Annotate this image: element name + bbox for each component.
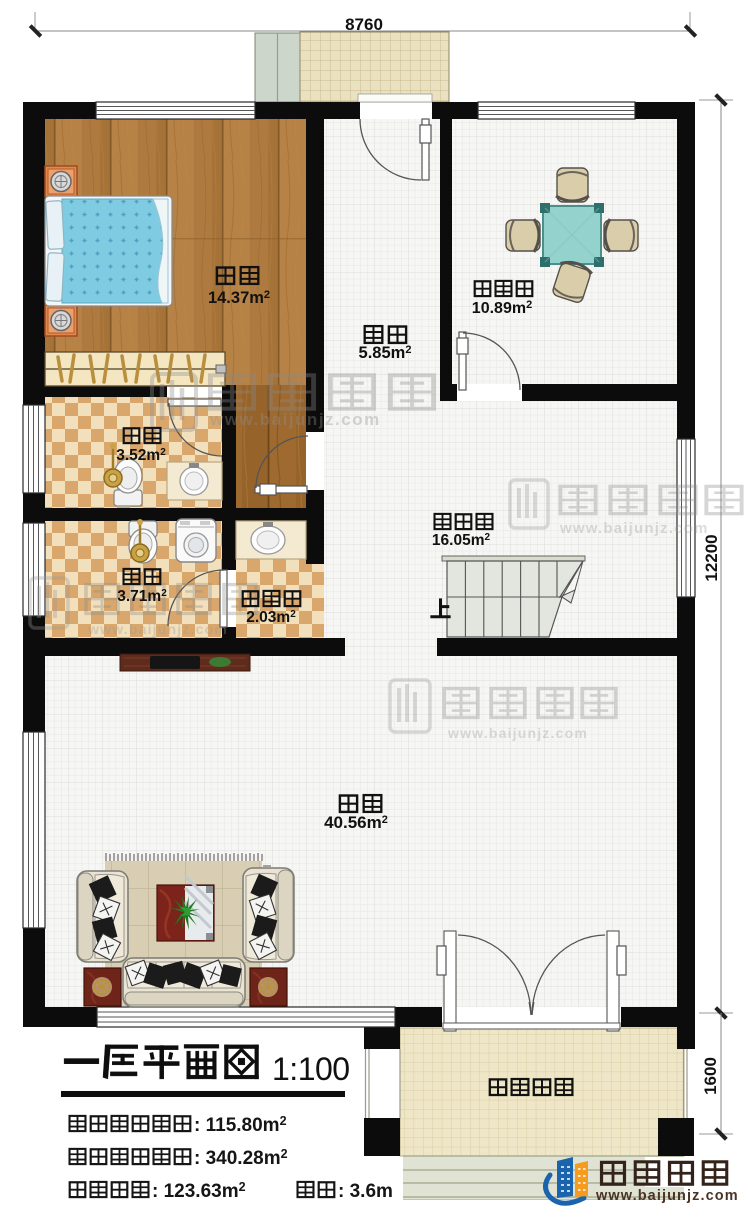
svg-text:www.baijunjz.com: www.baijunjz.com [209, 410, 381, 429]
svg-text:: 340.28m2: : 340.28m2 [194, 1147, 288, 1169]
svg-text:10.89m2: 10.89m2 [472, 299, 532, 317]
svg-text:8760: 8760 [345, 15, 383, 34]
svg-text:www.baijunjz.com: www.baijunjz.com [87, 621, 228, 637]
svg-text:14.37m2: 14.37m2 [208, 289, 270, 307]
svg-text:3.71m2: 3.71m2 [117, 588, 167, 605]
svg-text:3.52m2: 3.52m2 [116, 447, 166, 464]
svg-text:www.baijunjz.com: www.baijunjz.com [447, 725, 588, 741]
svg-text:1:100: 1:100 [272, 1051, 350, 1087]
svg-text:: 115.80m2: : 115.80m2 [194, 1114, 287, 1136]
svg-text:: 123.63m2: : 123.63m2 [152, 1180, 246, 1202]
svg-text:16.05m2: 16.05m2 [432, 532, 491, 549]
svg-text:2.03m2: 2.03m2 [246, 609, 296, 626]
svg-text:5.85m2: 5.85m2 [359, 344, 412, 362]
svg-text:1600: 1600 [701, 1057, 720, 1095]
svg-text:12200: 12200 [702, 534, 721, 581]
svg-text:www.baijunjz.com: www.baijunjz.com [559, 520, 709, 537]
svg-text:40.56m2: 40.56m2 [324, 813, 388, 832]
svg-text:: 3.6m: : 3.6m [338, 1181, 393, 1202]
svg-text:www.baijunjz.com: www.baijunjz.com [595, 1188, 739, 1204]
